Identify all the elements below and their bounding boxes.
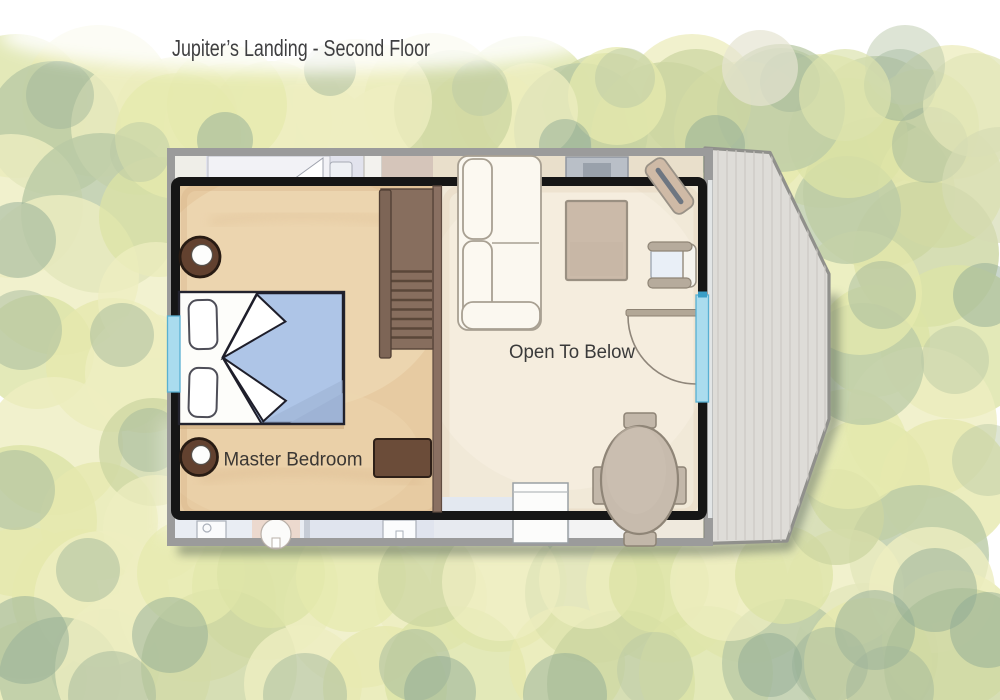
svg-text:Master Bedroom: Master Bedroom	[224, 450, 363, 471]
svg-text:Open To Below: Open To Below	[509, 341, 636, 363]
svg-text:Jupiter’s Landing - Second Flo: Jupiter’s Landing - Second Floor	[172, 35, 430, 61]
